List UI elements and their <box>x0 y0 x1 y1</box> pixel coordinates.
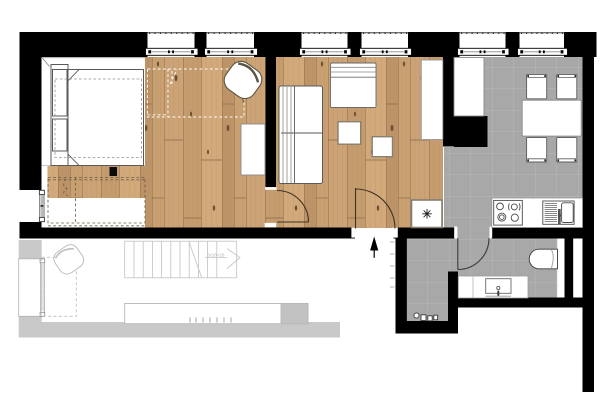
svg-text:2x16+26: 2x16+26 <box>207 253 225 258</box>
